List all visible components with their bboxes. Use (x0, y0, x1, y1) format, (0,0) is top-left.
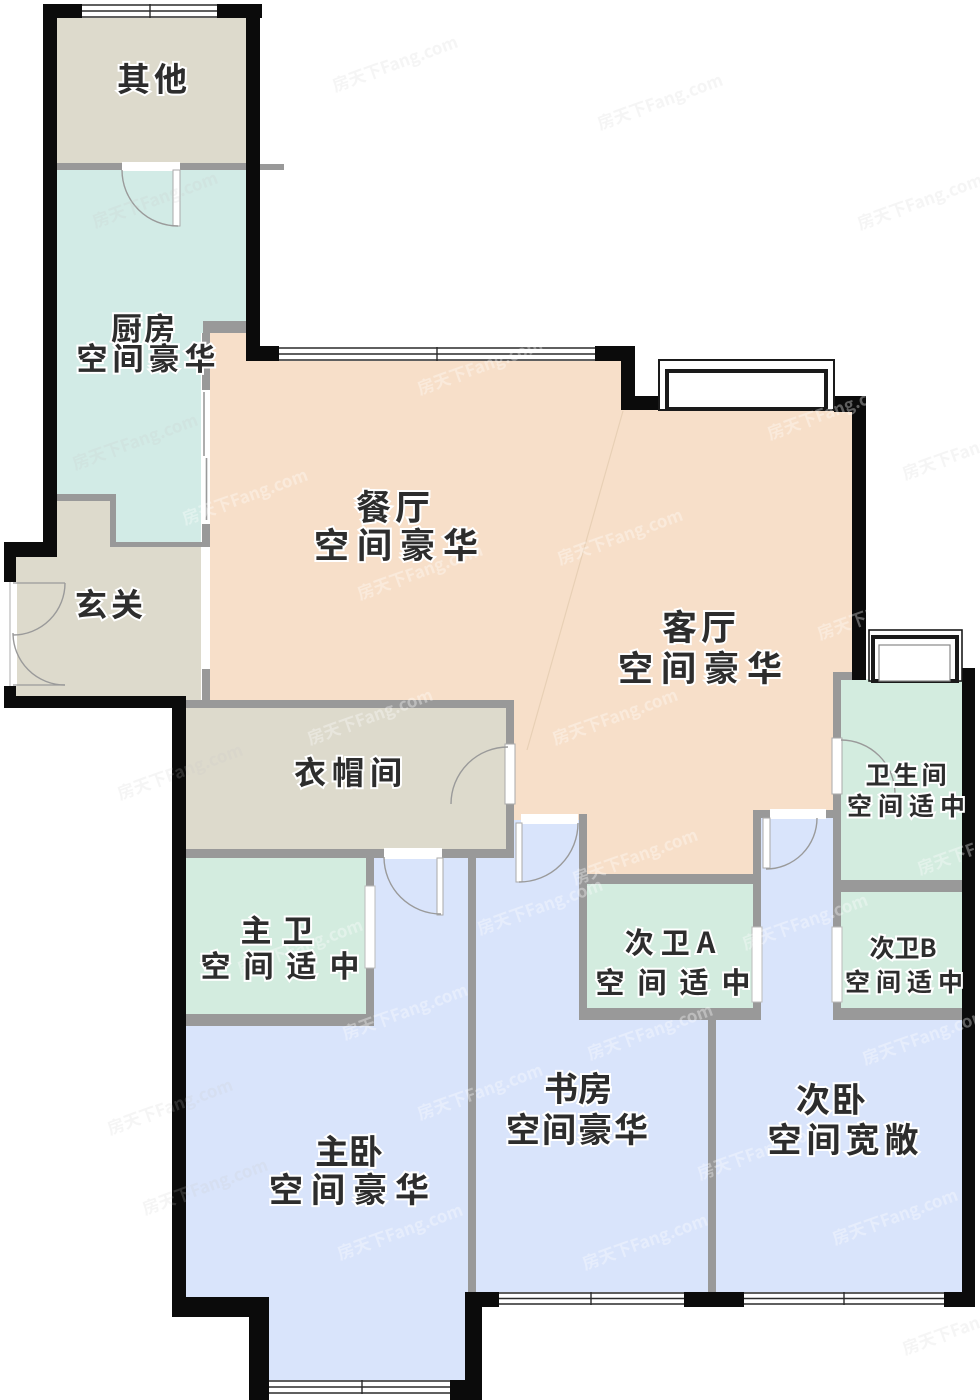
svg-text:衣帽间: 衣帽间 (294, 748, 408, 794)
svg-text:空间豪华: 空间豪华 (77, 334, 221, 379)
svg-text:空间豪华: 空间豪华 (506, 1103, 650, 1152)
svg-text:空间豪华: 空间豪华 (314, 518, 486, 569)
svg-text:空间适中: 空间适中 (201, 942, 373, 986)
svg-text:空间适中: 空间适中 (595, 960, 763, 1002)
svg-text:空间适中: 空间适中 (845, 963, 969, 999)
svg-text:空间豪华: 空间豪华 (269, 1163, 437, 1212)
svg-text:玄关: 玄关 (75, 580, 147, 626)
svg-text:次卫A: 次卫A (625, 920, 723, 962)
svg-text:空间豪华: 空间豪华 (618, 641, 790, 692)
svg-text:空间宽敞: 空间宽敞 (768, 1113, 924, 1162)
svg-text:空间适中: 空间适中 (847, 787, 971, 823)
svg-text:其他: 其他 (117, 53, 191, 101)
svg-text:次卫B: 次卫B (869, 929, 936, 965)
